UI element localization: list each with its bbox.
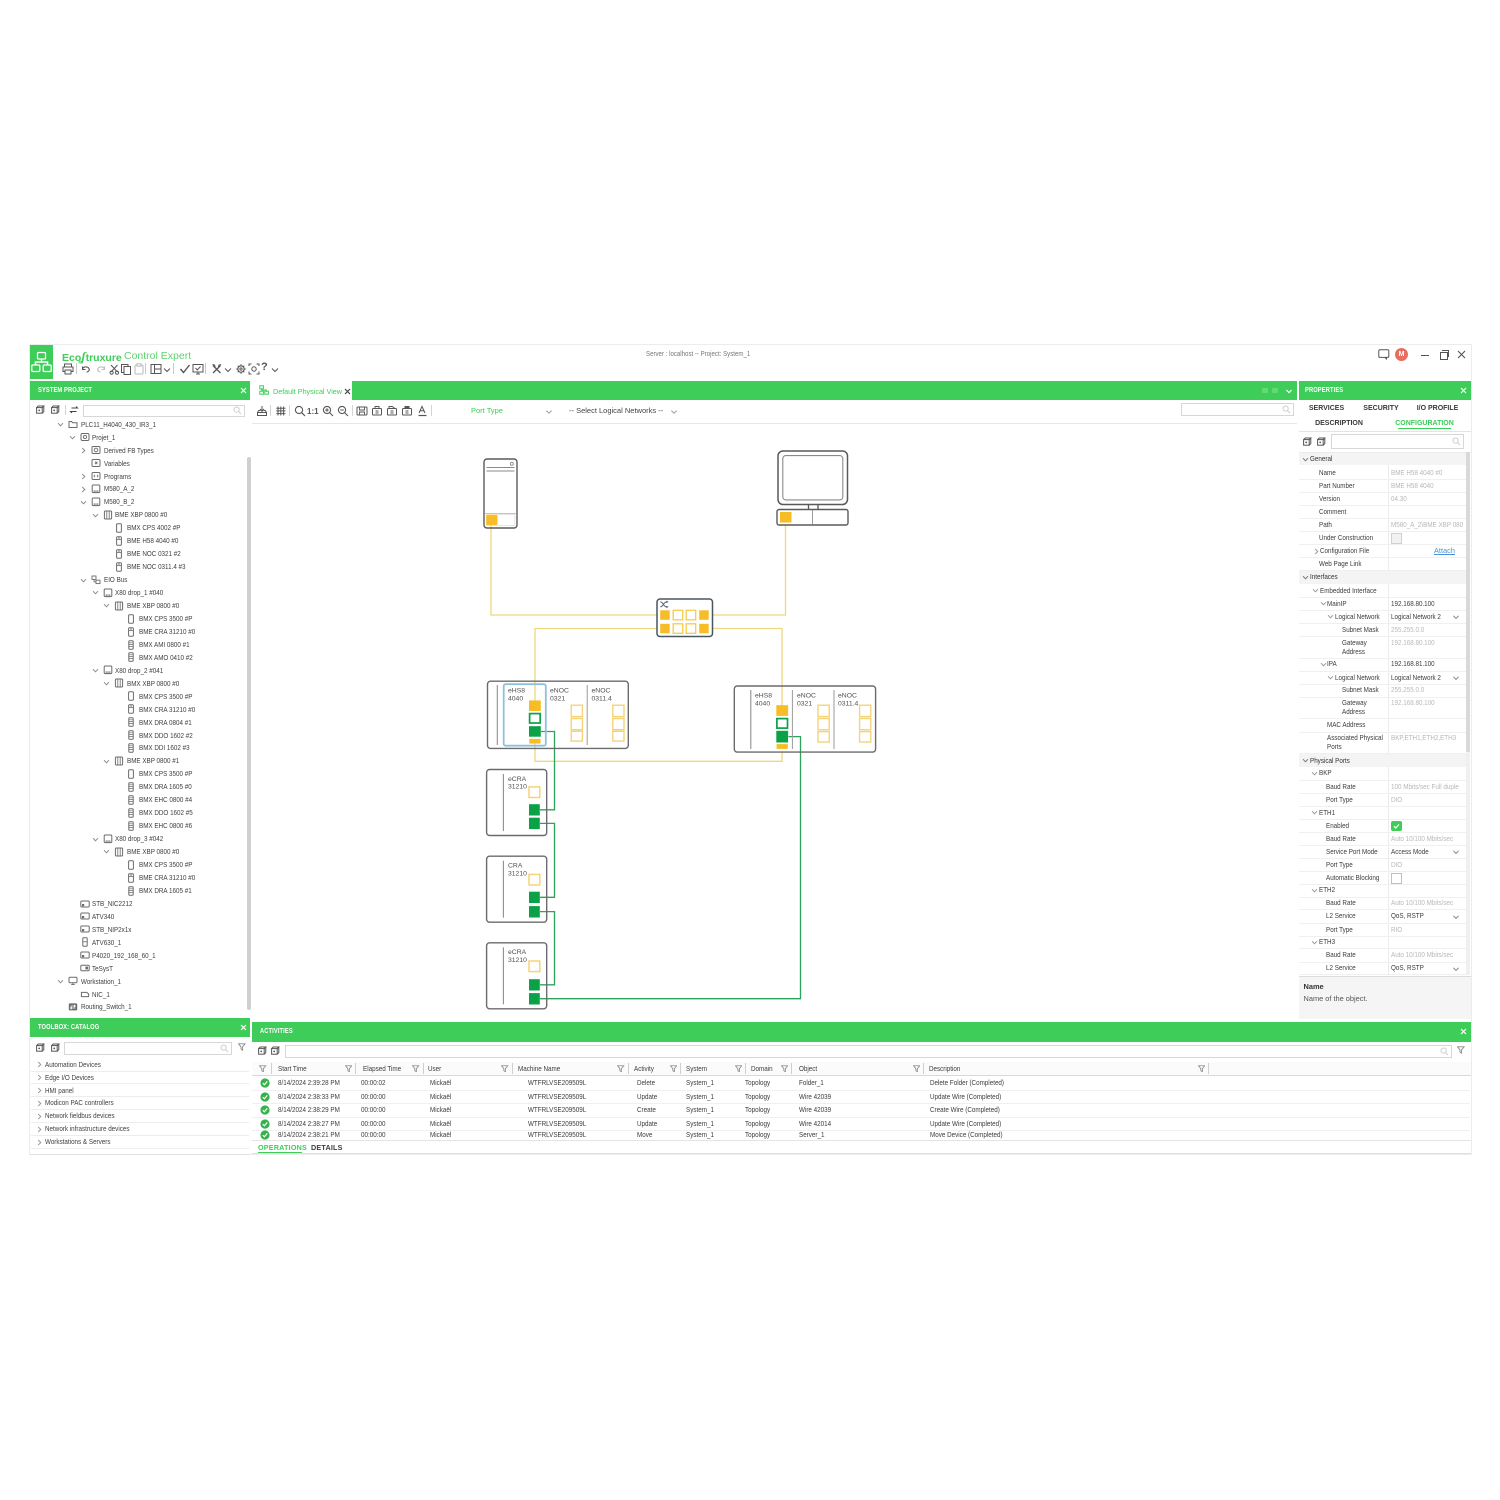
svg-text:CRA: CRA [508,863,523,870]
svg-text:0311.4: 0311.4 [838,700,859,707]
svg-text:0321: 0321 [550,696,565,703]
svg-text:eNOC: eNOC [592,688,611,695]
svg-text:eHS8: eHS8 [508,688,525,695]
svg-text:eNOC: eNOC [550,688,569,695]
svg-text:eHS8: eHS8 [755,693,772,700]
svg-text:31210: 31210 [508,784,527,791]
svg-text:eNOC: eNOC [797,693,816,700]
svg-text:4040: 4040 [508,696,523,703]
svg-text:eNOC: eNOC [838,693,857,700]
svg-text:0311.4: 0311.4 [592,696,613,703]
svg-text:0321: 0321 [797,700,812,707]
svg-text:31210: 31210 [508,870,527,877]
svg-text:4040: 4040 [755,700,770,707]
svg-text:eCRA: eCRA [508,949,527,956]
svg-text:31210: 31210 [508,957,527,964]
svg-text:eCRA: eCRA [508,776,527,783]
